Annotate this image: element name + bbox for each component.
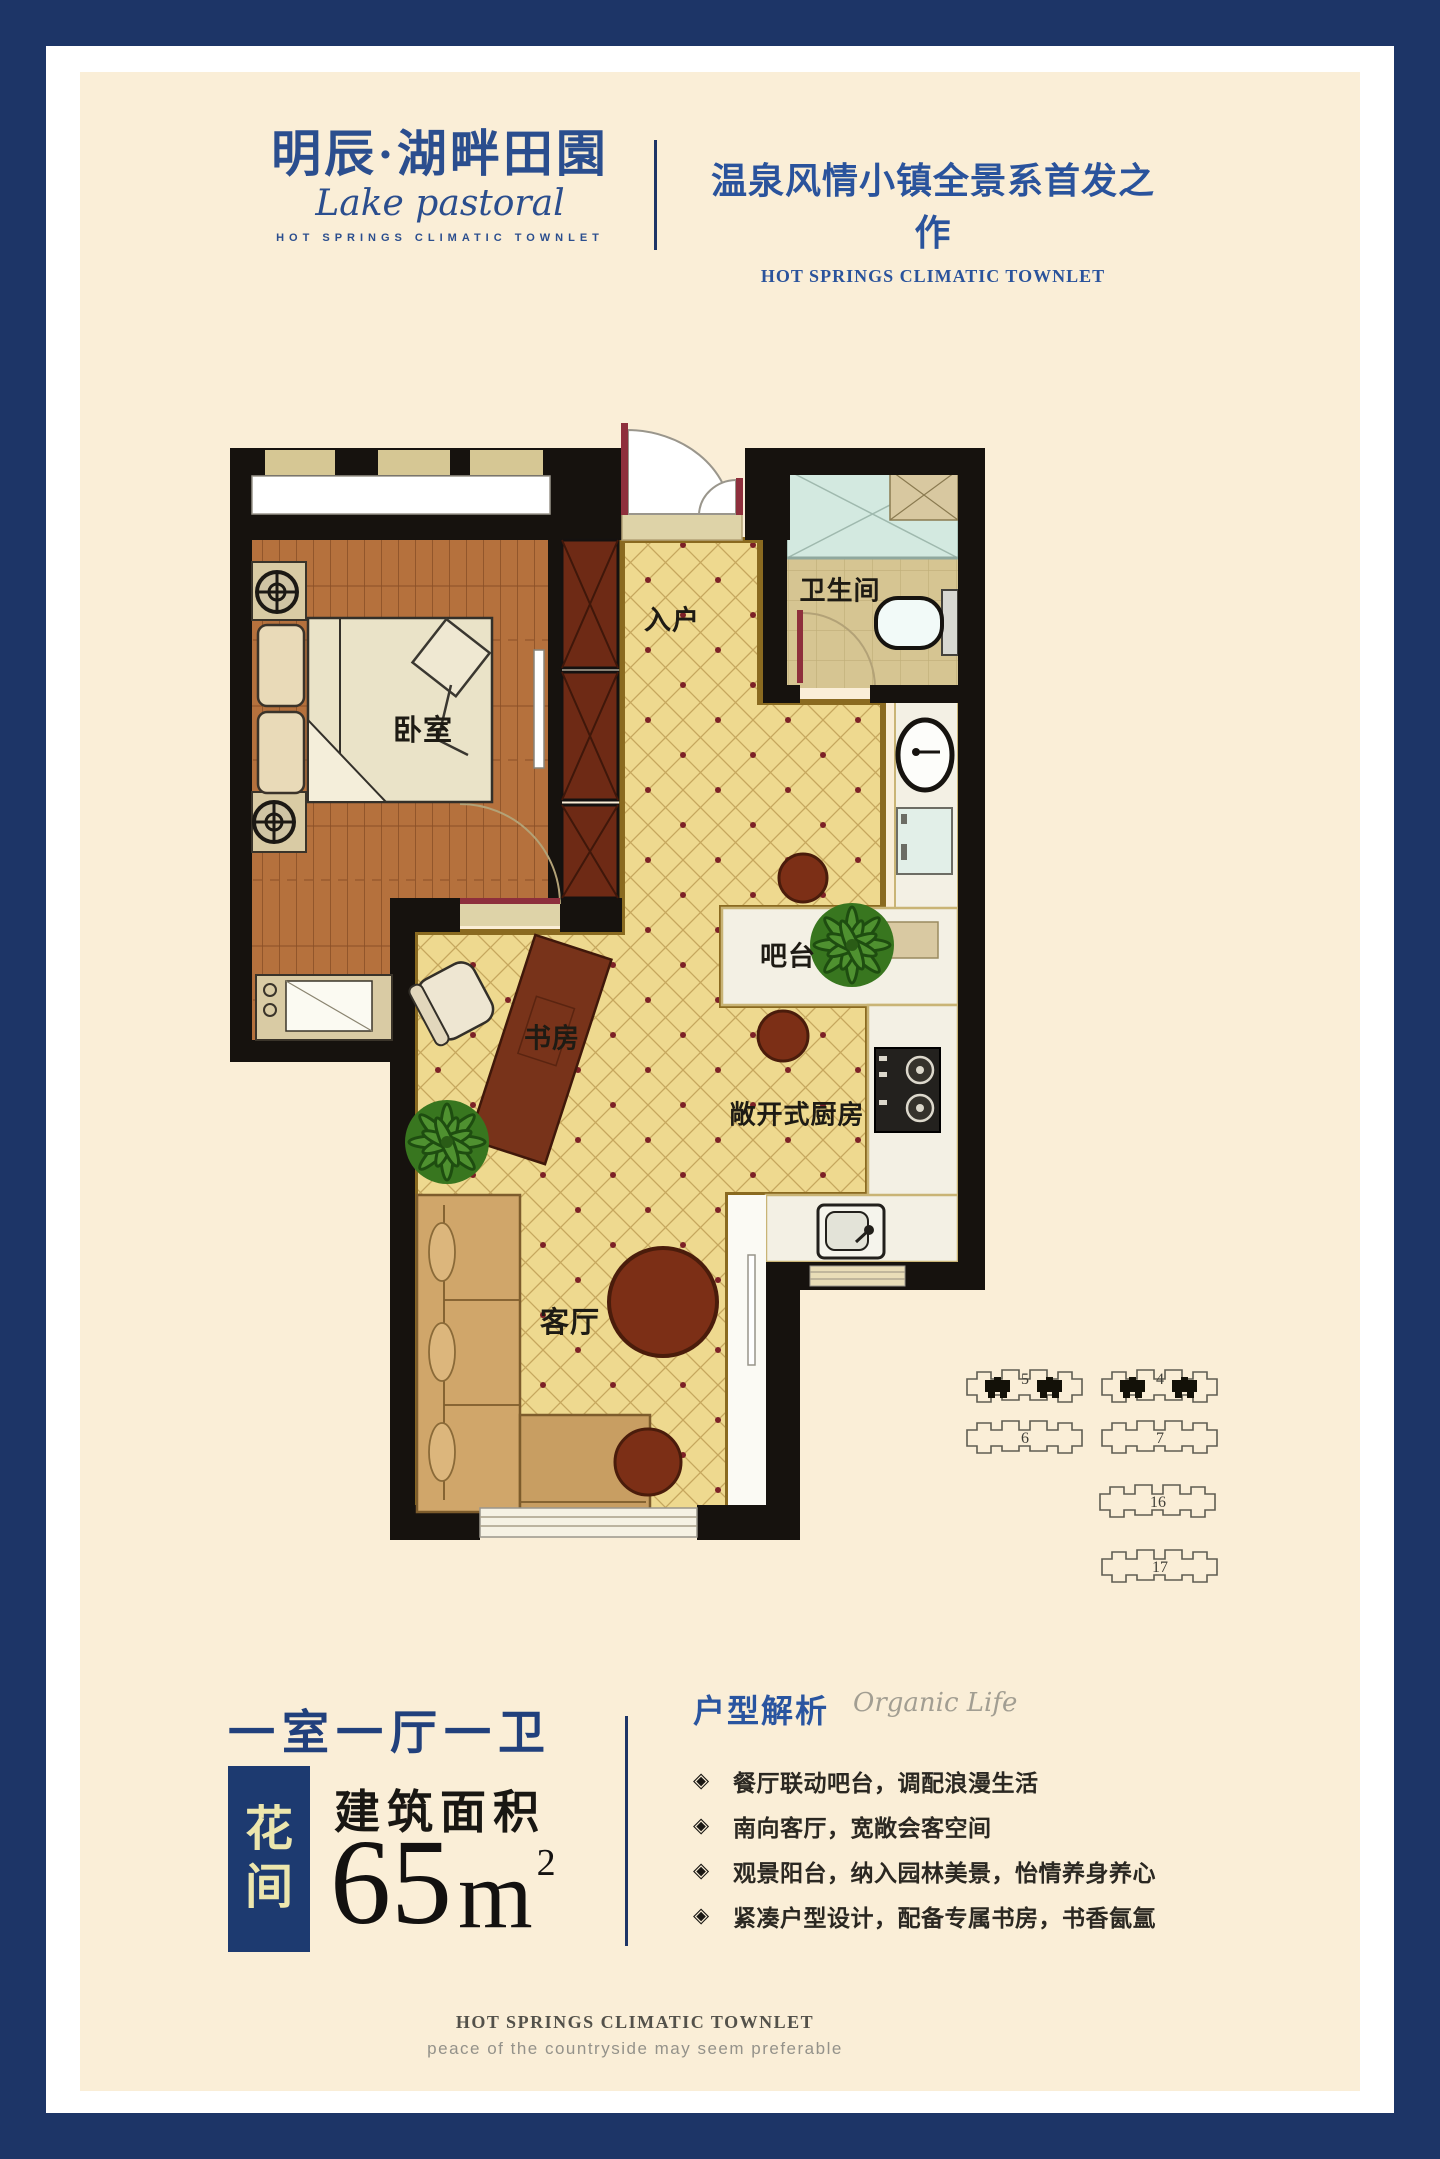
room-label-bar: 吧台 xyxy=(760,935,816,974)
brand-logo-chinese: 明辰·湖畔田園 xyxy=(225,128,655,181)
brand-logo: 明辰·湖畔田園 Lake pastoral HOT SPRINGS CLIMAT… xyxy=(225,128,655,244)
area-unit: m xyxy=(458,1846,533,1944)
brand-logo-caption: HOT SPRINGS CLIMATIC TOWNLET xyxy=(225,232,655,244)
living-side-table xyxy=(615,1429,681,1495)
tagline-english: HOT SPRINGS CLIMATIC TOWNLET xyxy=(698,266,1168,287)
bedroom-window xyxy=(252,476,550,514)
analysis-title: 户型解析 xyxy=(693,1686,829,1732)
analysis-bullets: ◈ 餐厅联动吧台，调配浪漫生活 ◈ 南向客厅，宽敞会客空间 ◈ 观景阳台，纳入园… xyxy=(693,1758,1253,1938)
building-number: 4 xyxy=(1156,1371,1164,1388)
area-exponent: 2 xyxy=(537,1844,556,1882)
analysis-bullet: ◈ 紧凑户型设计，配备专属书房，书香氤氲 xyxy=(693,1893,1253,1938)
kitchen-bottom-window xyxy=(810,1266,905,1286)
unit-name-char: 花 xyxy=(245,1806,293,1854)
header-tagline: 温泉风情小镇全景系首发之作 HOT SPRINGS CLIMATIC TOWNL… xyxy=(698,152,1168,287)
analysis-bullet: ◈ 观景阳台，纳入园林美景，怡情养身养心 xyxy=(693,1848,1253,1893)
bottom-divider xyxy=(625,1716,628,1946)
entry-wardrobe xyxy=(562,540,618,898)
toilet-bowl xyxy=(876,598,942,648)
unit-name-box: 花 间 xyxy=(228,1766,310,1952)
room-label-entry: 入户 xyxy=(644,599,700,638)
living-bottom-window xyxy=(480,1508,697,1537)
diamond-bullet-icon: ◈ xyxy=(693,1903,733,1928)
poster-page: 明辰·湖畔田園 Lake pastoral HOT SPRINGS CLIMAT… xyxy=(0,0,1440,2159)
building-number: 6 xyxy=(1021,1430,1029,1447)
area-number: 65 xyxy=(330,1822,452,1944)
vanity-desk xyxy=(256,975,392,1040)
footer-subtitle: peace of the countryside may seem prefer… xyxy=(320,2039,950,2059)
site-key-diagram: 5 4 6 7 16 17 xyxy=(945,1340,1245,1600)
building-number: 5 xyxy=(1021,1371,1029,1388)
wash-basin xyxy=(898,720,952,790)
area-value: 65 m 2 xyxy=(330,1822,556,1944)
unit-name-char: 间 xyxy=(245,1864,293,1912)
living-side-window-frame xyxy=(748,1255,755,1365)
building-number: 7 xyxy=(1156,1430,1164,1447)
bathroom-door-jamb xyxy=(797,610,803,683)
diamond-bullet-icon: ◈ xyxy=(693,1813,733,1838)
plant-bar xyxy=(810,903,894,987)
room-label-kitchen: 敞开式厨房 xyxy=(729,1095,864,1132)
bar-stool xyxy=(779,854,827,902)
analysis-watermark: Organic Life xyxy=(853,1688,1017,1718)
unit-analysis: 户型解析 Organic Life ◈ 餐厅联动吧台，调配浪漫生活 ◈ 南向客厅… xyxy=(693,1686,1253,1938)
living-round-table xyxy=(609,1248,717,1356)
living-window-strip xyxy=(728,1195,766,1512)
footer: HOT SPRINGS CLIMATIC TOWNLET peace of th… xyxy=(320,2012,950,2059)
closet-slider-door xyxy=(534,650,544,768)
kitchen-sink xyxy=(818,1205,884,1258)
unit-layout-title: 一室一厅一卫 xyxy=(228,1694,552,1763)
diamond-bullet-icon: ◈ xyxy=(693,1858,733,1883)
room-label-bedroom: 卧室 xyxy=(393,707,453,749)
building-number: 16 xyxy=(1150,1494,1166,1511)
diamond-bullet-icon: ◈ xyxy=(693,1768,733,1793)
tagline-chinese: 温泉风情小镇全景系首发之作 xyxy=(698,152,1168,256)
analysis-bullet: ◈ 餐厅联动吧台，调配浪漫生活 xyxy=(693,1758,1253,1803)
plant-study xyxy=(405,1100,489,1184)
brand-logo-script: Lake pastoral xyxy=(225,183,655,224)
room-label-bathroom: 卫生间 xyxy=(799,571,880,608)
room-label-living: 客厅 xyxy=(540,1299,600,1341)
toilet-tank xyxy=(942,590,958,655)
bar-stool xyxy=(758,1011,808,1061)
room-label-study: 书房 xyxy=(524,1017,580,1056)
entry-door-jamb xyxy=(621,423,628,515)
footer-title: HOT SPRINGS CLIMATIC TOWNLET xyxy=(320,2012,950,2033)
stove xyxy=(875,1048,940,1132)
building-number: 17 xyxy=(1152,1559,1168,1576)
analysis-bullet: ◈ 南向客厅，宽敞会客空间 xyxy=(693,1803,1253,1848)
entry-threshold xyxy=(622,512,742,540)
floorplan-drawing xyxy=(228,300,988,1550)
header-divider xyxy=(654,140,657,250)
